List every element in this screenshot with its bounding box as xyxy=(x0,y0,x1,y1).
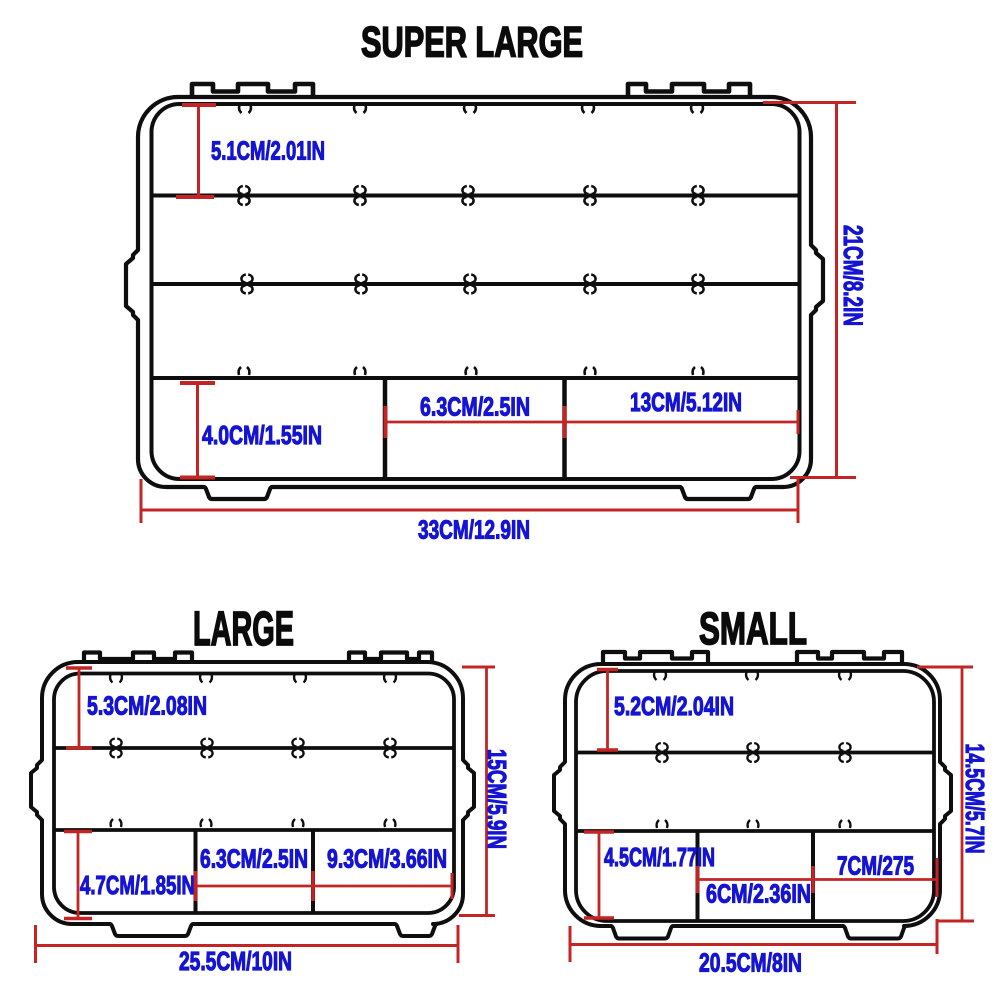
svg-text:4.0CM/1.55IN: 4.0CM/1.55IN xyxy=(202,420,322,450)
svg-text:14.5CM/5.7IN: 14.5CM/5.7IN xyxy=(960,744,990,854)
svg-text:5.3CM/2.08IN: 5.3CM/2.08IN xyxy=(87,691,207,721)
svg-text:15CM/5.9IN: 15CM/5.9IN xyxy=(482,749,512,849)
svg-text:13CM/5.12IN: 13CM/5.12IN xyxy=(630,387,742,417)
svg-text:SMALL: SMALL xyxy=(699,603,807,654)
svg-text:LARGE: LARGE xyxy=(193,602,294,656)
svg-text:6CM/2.36IN: 6CM/2.36IN xyxy=(706,879,811,909)
svg-text:7CM/275: 7CM/275 xyxy=(837,851,914,881)
svg-text:6.3CM/2.5IN: 6.3CM/2.5IN xyxy=(420,392,530,422)
svg-text:6.3CM/2.5IN: 6.3CM/2.5IN xyxy=(200,844,308,874)
svg-text:4.7CM/1.85IN: 4.7CM/1.85IN xyxy=(80,870,195,900)
svg-text:9.3CM/3.66IN: 9.3CM/3.66IN xyxy=(327,844,447,874)
svg-text:5.2CM/2.04IN: 5.2CM/2.04IN xyxy=(614,691,734,721)
svg-text:21CM/8.2IN: 21CM/8.2IN xyxy=(838,225,868,326)
svg-text:20.5CM/8IN: 20.5CM/8IN xyxy=(699,948,802,978)
svg-text:25.5CM/10IN: 25.5CM/10IN xyxy=(179,946,292,976)
svg-text:5.1CM/2.01IN: 5.1CM/2.01IN xyxy=(211,136,325,166)
svg-text:SUPER LARGE: SUPER LARGE xyxy=(361,20,583,67)
svg-text:33CM/12.9IN: 33CM/12.9IN xyxy=(418,515,530,545)
